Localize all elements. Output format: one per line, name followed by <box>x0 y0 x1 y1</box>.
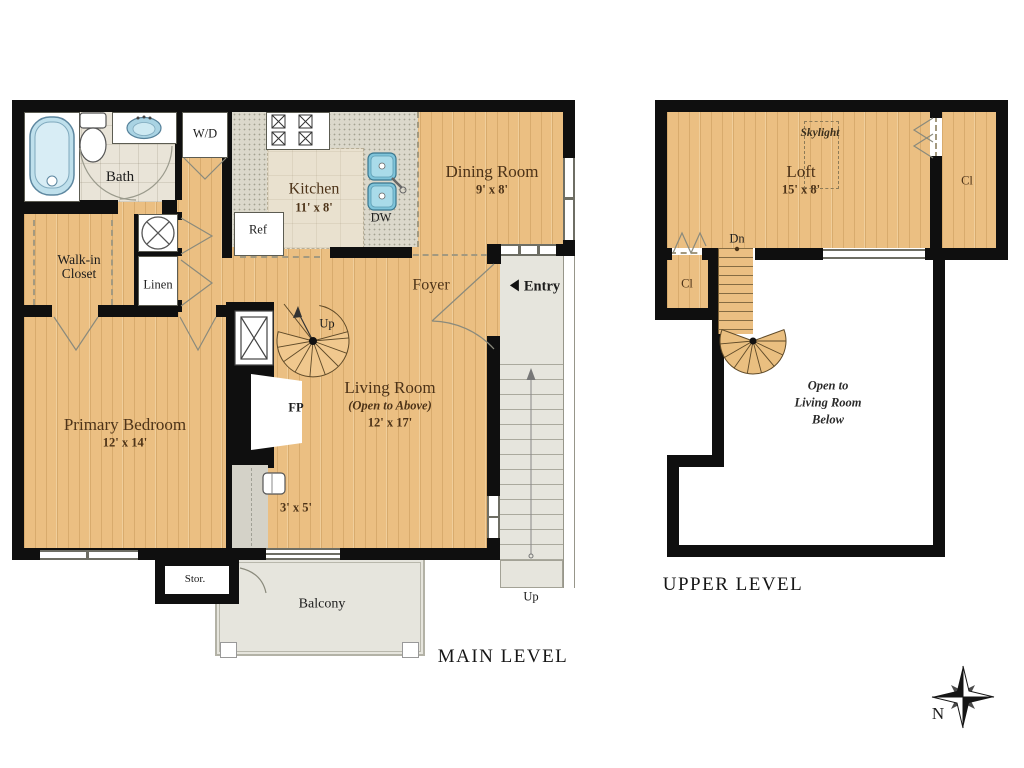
bath-sink-icon <box>127 116 161 139</box>
open-below-line3: Below <box>812 413 844 426</box>
open-below-line1: Open to <box>808 379 849 392</box>
storage-door-arc <box>240 568 266 593</box>
closet-left-label: Cl <box>681 277 693 290</box>
main-level-title: MAIN LEVEL <box>438 647 569 667</box>
living-room-sub: (Open to Above) <box>348 399 432 412</box>
loft-dims: 15' x 8' <box>782 183 820 196</box>
linen-label: Linen <box>143 278 172 291</box>
stairs-up-label: Up <box>523 590 538 603</box>
entry-label: Entry <box>510 279 560 294</box>
kitchen-sink-icon <box>368 153 406 210</box>
compass-north-label: N <box>932 705 944 723</box>
primary-bedroom-dims: 12' x 14' <box>103 436 147 449</box>
stairs-direction-arrow <box>527 368 536 558</box>
foyer-label: Foyer <box>412 278 449 295</box>
kitchen-dims: 11' x 8' <box>295 201 333 214</box>
living-room-label: Living Room <box>344 379 435 397</box>
shaft-icon <box>235 311 273 365</box>
stove-burners-icon <box>272 115 312 145</box>
open-below-line2: Living Room <box>794 396 861 409</box>
tub-icon <box>30 117 74 195</box>
wd-label: W/D <box>193 127 217 140</box>
primary-bedroom-label: Primary Bedroom <box>64 416 186 434</box>
toilet-icon <box>80 113 106 162</box>
entry-arrow-icon <box>510 279 519 291</box>
dn-label: Dn <box>729 232 744 245</box>
dw-label: DW <box>371 211 392 224</box>
entry-text: Entry <box>524 278 560 294</box>
upper-level-title: UPPER LEVEL <box>663 575 804 595</box>
living-room-dims: 12' x 17' <box>368 416 412 429</box>
walk-in-closet-label: Walk-in Closet <box>45 253 113 281</box>
nook-dims: 3' x 5' <box>280 501 312 514</box>
floor-plan: Bath W/D Kitchen 11' x 8' Ref DW Dining … <box>0 0 1024 768</box>
fp-label: FP <box>288 401 303 414</box>
storage-label: Stor. <box>185 574 205 586</box>
closet-right-label: Cl <box>961 174 973 187</box>
dining-dims: 9' x 8' <box>476 183 508 196</box>
skylight-label: Skylight <box>801 127 840 139</box>
ref-label: Ref <box>249 223 267 236</box>
spiral-up-label: Up <box>319 317 334 330</box>
dn-marker <box>735 247 739 251</box>
kitchen-label: Kitchen <box>289 182 340 199</box>
bath-label: Bath <box>106 170 134 186</box>
balcony-label: Balcony <box>299 598 346 613</box>
spiral-stair-icon <box>277 304 349 377</box>
utility-circle-icon <box>142 217 174 249</box>
loft-label: Loft <box>786 163 815 181</box>
dining-label: Dining Room <box>445 163 538 181</box>
upper-spiral-stair-icon <box>720 330 786 374</box>
nook-door-icon <box>263 473 285 494</box>
